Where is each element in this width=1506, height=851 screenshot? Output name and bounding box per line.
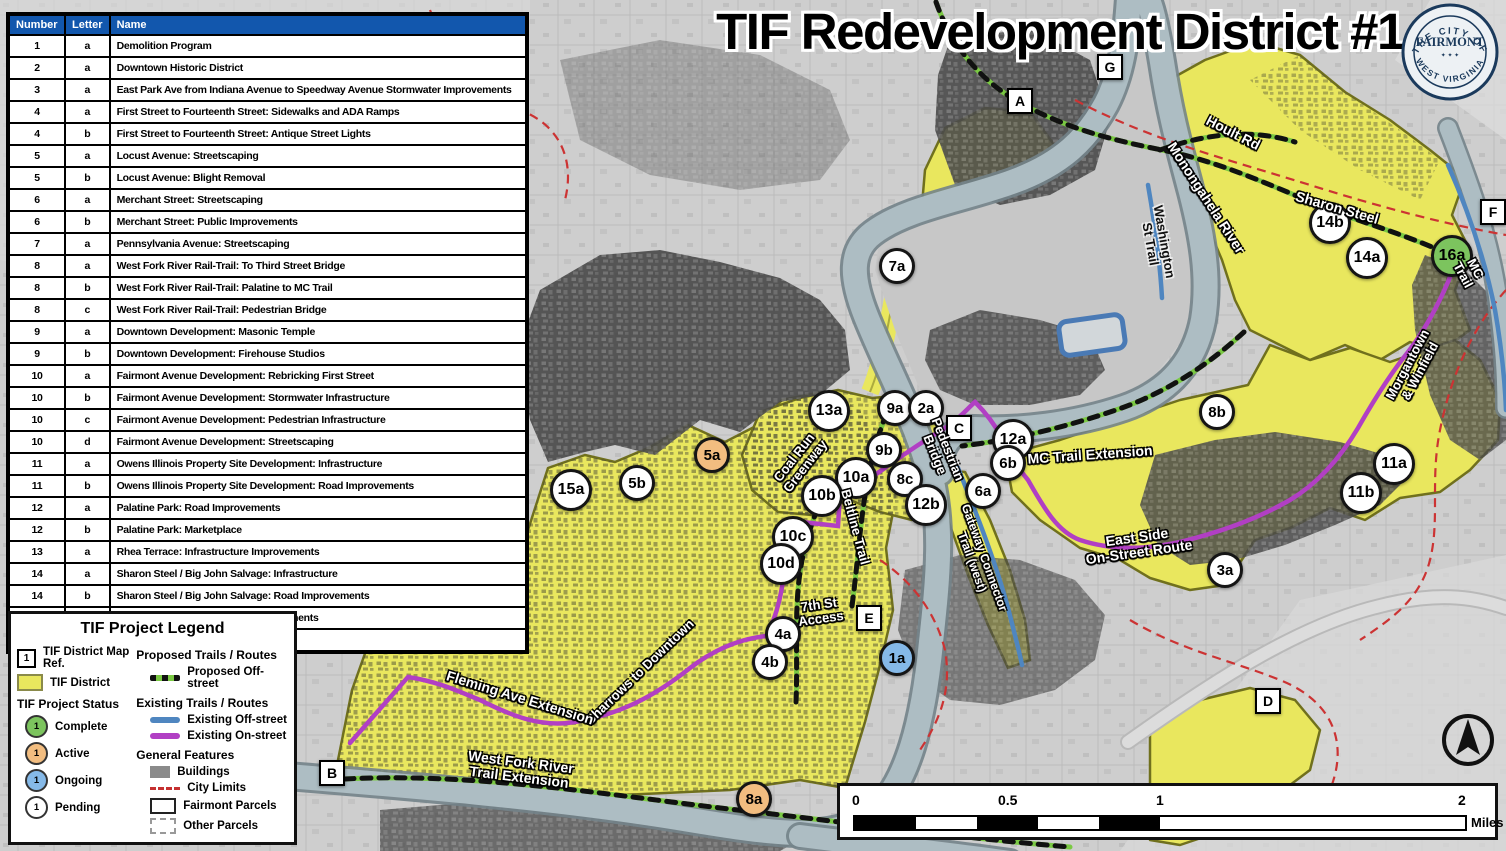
col-header-name: Name xyxy=(110,15,526,35)
project-marker-14a: 14a xyxy=(1346,237,1388,279)
cell-number: 9 xyxy=(9,343,65,365)
cell-letter: b xyxy=(65,475,110,497)
cell-number: 6 xyxy=(9,189,65,211)
project-marker-12b: 12b xyxy=(905,484,947,526)
cell-letter: a xyxy=(65,79,110,101)
cell-name: Demolition Program xyxy=(110,35,526,57)
cell-letter: b xyxy=(65,167,110,189)
cell-letter: a xyxy=(65,57,110,79)
cell-letter: b xyxy=(65,519,110,541)
cell-number: 5 xyxy=(9,167,65,189)
cell-number: 11 xyxy=(9,475,65,497)
cell-name: First Street to Fourteenth Street: Sidew… xyxy=(110,101,526,123)
page-title: TIF Redevelopment District #1 xyxy=(620,6,1500,57)
table-row: 8aWest Fork River Rail-Trail: To Third S… xyxy=(9,255,526,277)
other-parcels-swatch xyxy=(150,818,176,834)
project-marker-8a: 8a xyxy=(736,781,772,817)
legend-fairmont-parcels: Fairmont Parcels xyxy=(150,798,288,814)
table-row: 8bWest Fork River Rail-Trail: Palatine t… xyxy=(9,277,526,299)
scale-tick-2: 2 xyxy=(1458,792,1466,808)
table-row: 14aSharon Steel / Big John Salvage: Infr… xyxy=(9,563,526,585)
map-ref-label-G: G xyxy=(1097,54,1123,80)
city-limits-swatch xyxy=(150,787,180,790)
cell-name: East Park Ave from Indiana Avenue to Spe… xyxy=(110,79,526,101)
cell-number: 6 xyxy=(9,211,65,233)
cell-number: 1 xyxy=(9,35,65,57)
project-marker-15a: 15a xyxy=(550,469,592,511)
map-ref-label-F: F xyxy=(1480,199,1506,225)
cell-number: 7 xyxy=(9,233,65,255)
table-row: 4aFirst Street to Fourteenth Street: Sid… xyxy=(9,101,526,123)
legend-status-ongoing: 1Ongoing xyxy=(17,769,136,792)
scale-tick-0: 0 xyxy=(852,792,860,808)
scale-tick-05: 0.5 xyxy=(998,792,1017,808)
cell-name: Sharon Steel / Big John Salvage: Road Im… xyxy=(110,585,526,607)
existing-onstreet-swatch xyxy=(150,733,180,739)
cell-name: Merchant Street: Streetscaping xyxy=(110,189,526,211)
cell-name: Fairmont Avenue Development: Stormwater … xyxy=(110,387,526,409)
cell-letter: a xyxy=(65,233,110,255)
project-marker-1a: 1a xyxy=(879,640,915,676)
cell-name: Fairmont Avenue Development: Streetscapi… xyxy=(110,431,526,453)
cell-letter: b xyxy=(65,123,110,145)
cell-name: West Fork River Rail-Trail: Palatine to … xyxy=(110,277,526,299)
project-marker-7a: 7a xyxy=(879,248,915,284)
cell-letter: a xyxy=(65,321,110,343)
cell-number: 12 xyxy=(9,519,65,541)
cell-letter: c xyxy=(65,409,110,431)
status-label: Complete xyxy=(55,721,107,733)
table-row: 9bDowntown Development: Firehouse Studio… xyxy=(9,343,526,365)
cell-number: 10 xyxy=(9,409,65,431)
cell-number: 10 xyxy=(9,365,65,387)
cell-number: 2 xyxy=(9,57,65,79)
existing-offstreet-swatch xyxy=(150,717,180,723)
proposed-offstreet-swatch xyxy=(150,675,180,681)
project-marker-10b: 10b xyxy=(801,475,843,517)
cell-letter: a xyxy=(65,189,110,211)
table-row: 1aDemolition Program xyxy=(9,35,526,57)
complete-status-swatch: 1 xyxy=(25,715,48,738)
cell-number: 9 xyxy=(9,321,65,343)
legend-status-pending: 1Pending xyxy=(17,796,136,819)
district-swatch xyxy=(17,674,43,691)
cell-name: Merchant Street: Public Improvements xyxy=(110,211,526,233)
table-row: 10cFairmont Avenue Development: Pedestri… xyxy=(9,409,526,431)
table-row: 14bSharon Steel / Big John Salvage: Road… xyxy=(9,585,526,607)
north-arrow xyxy=(1440,711,1496,769)
legend-proposed-title: Proposed Trails / Routes xyxy=(136,648,288,662)
table-row: 4bFirst Street to Fourteenth Street: Ant… xyxy=(9,123,526,145)
cell-name: Rhea Terrace: Infrastructure Improvement… xyxy=(110,541,526,563)
map-ref-label-D: D xyxy=(1255,688,1281,714)
table-row: 8cWest Fork River Rail-Trail: Pedestrian… xyxy=(9,299,526,321)
cell-number: 14 xyxy=(9,563,65,585)
col-header-letter: Letter xyxy=(65,15,110,35)
legend-existing-offstreet: Existing Off-street xyxy=(150,714,288,726)
legend-buildings: Buildings xyxy=(150,766,288,778)
table-row: 5bLocust Avenue: Blight Removal xyxy=(9,167,526,189)
cell-number: 8 xyxy=(9,299,65,321)
cell-name: West Fork River Rail-Trail: To Third Str… xyxy=(110,255,526,277)
cell-name: First Street to Fourteenth Street: Antiq… xyxy=(110,123,526,145)
table-row: 6bMerchant Street: Public Improvements xyxy=(9,211,526,233)
legend-proposed-offstreet: Proposed Off-street xyxy=(150,666,288,690)
legend-existing-onstreet: Existing On-street xyxy=(150,730,288,742)
table-row: 3aEast Park Ave from Indiana Avenue to S… xyxy=(9,79,526,101)
map-ref-label-B: B xyxy=(319,760,345,786)
legend-title: TIF Project Legend xyxy=(17,620,288,638)
cell-letter: b xyxy=(65,343,110,365)
cell-letter: a xyxy=(65,101,110,123)
cell-letter: a xyxy=(65,453,110,475)
project-marker-11b: 11b xyxy=(1340,472,1382,514)
table-row: 5aLocust Avenue: Streetscaping xyxy=(9,145,526,167)
scale-tick-1: 1 xyxy=(1156,792,1164,808)
cell-letter: a xyxy=(65,563,110,585)
cell-name: Fairmont Avenue Development: Pedestrian … xyxy=(110,409,526,431)
cell-letter: a xyxy=(65,145,110,167)
legend-status-complete: 1Complete xyxy=(17,715,136,738)
ongoing-status-swatch: 1 xyxy=(25,769,48,792)
project-marker-11a: 11a xyxy=(1373,443,1415,485)
cell-number: 8 xyxy=(9,277,65,299)
project-marker-6a: 6a xyxy=(965,473,1001,509)
svg-text:✦ ✦ ✦: ✦ ✦ ✦ xyxy=(1441,52,1459,59)
cell-name: Downtown Historic District xyxy=(110,57,526,79)
cell-letter: a xyxy=(65,497,110,519)
legend-map-ref: 1 TIF District Map Ref. xyxy=(17,646,136,670)
table-row: 10bFairmont Avenue Development: Stormwat… xyxy=(9,387,526,409)
project-marker-6b: 6b xyxy=(990,445,1026,481)
table-row: 13aRhea Terrace: Infrastructure Improvem… xyxy=(9,541,526,563)
cell-name: Locust Avenue: Blight Removal xyxy=(110,167,526,189)
table-row: 10dFairmont Avenue Development: Streetsc… xyxy=(9,431,526,453)
cell-name: Downtown Development: Firehouse Studios xyxy=(110,343,526,365)
cell-name: Owens Illinois Property Site Development… xyxy=(110,453,526,475)
table-row: 11bOwens Illinois Property Site Developm… xyxy=(9,475,526,497)
cell-letter: b xyxy=(65,585,110,607)
project-marker-4b: 4b xyxy=(752,644,788,680)
legend-status-title: TIF Project Status xyxy=(17,697,136,711)
project-marker-2a: 2a xyxy=(908,390,944,426)
legend-general-title: General Features xyxy=(136,748,288,762)
col-header-number: Number xyxy=(9,15,65,35)
project-marker-5a: 5a xyxy=(694,437,730,473)
cell-number: 4 xyxy=(9,123,65,145)
legend-existing-title: Existing Trails / Routes xyxy=(136,696,288,710)
project-marker-8b: 8b xyxy=(1199,394,1235,430)
active-status-swatch: 1 xyxy=(25,742,48,765)
table-row: 6aMerchant Street: Streetscaping xyxy=(9,189,526,211)
status-label: Pending xyxy=(55,802,100,814)
cell-number: 11 xyxy=(9,453,65,475)
cell-number: 5 xyxy=(9,145,65,167)
status-label: Active xyxy=(55,748,90,760)
cell-letter: a xyxy=(65,541,110,563)
cell-letter: a xyxy=(65,365,110,387)
project-marker-3a: 3a xyxy=(1207,552,1243,588)
cell-letter: c xyxy=(65,299,110,321)
cell-number: 4 xyxy=(9,101,65,123)
fairmont-parcels-swatch xyxy=(150,798,176,814)
status-label: Ongoing xyxy=(55,775,102,787)
cell-name: Palatine Park: Marketplace xyxy=(110,519,526,541)
project-table: Number Letter Name 1aDemolition Program2… xyxy=(8,14,527,652)
cell-name: Sharon Steel / Big John Salvage: Infrast… xyxy=(110,563,526,585)
table-header-row: Number Letter Name xyxy=(9,15,526,35)
cell-number: 13 xyxy=(9,541,65,563)
legend-city-limits: City Limits xyxy=(150,782,288,794)
scale-bar-segments xyxy=(853,815,1467,831)
cell-letter: a xyxy=(65,35,110,57)
map-ref-label-C: C xyxy=(946,415,972,441)
cell-number: 10 xyxy=(9,431,65,453)
cell-letter: a xyxy=(65,255,110,277)
city-seal-logo: THE CITY OF FAIRMONT ✦ ✦ ✦ WEST VIRGINIA xyxy=(1400,2,1500,102)
cell-name: Fairmont Avenue Development: Rebricking … xyxy=(110,365,526,387)
table-row: 2aDowntown Historic District xyxy=(9,57,526,79)
scale-unit-label: Miles xyxy=(1471,815,1504,830)
project-marker-16a: 16a xyxy=(1431,235,1473,277)
map-ref-label-E: E xyxy=(856,605,882,631)
cell-letter: d xyxy=(65,431,110,453)
cell-name: Pennsylvania Avenue: Streetscaping xyxy=(110,233,526,255)
pending-status-swatch: 1 xyxy=(25,796,48,819)
project-marker-14b: 14b xyxy=(1309,202,1351,244)
cell-number: 8 xyxy=(9,255,65,277)
map-canvas: TIF Redevelopment District #1 THE CITY O… xyxy=(0,0,1506,851)
project-marker-13a: 13a xyxy=(808,390,850,432)
table-row: 11aOwens Illinois Property Site Developm… xyxy=(9,453,526,475)
map-ref-swatch: 1 xyxy=(17,649,36,668)
cell-letter: b xyxy=(65,277,110,299)
table-row: 10aFairmont Avenue Development: Rebricki… xyxy=(9,365,526,387)
map-ref-label-A: A xyxy=(1007,88,1033,114)
cell-number: 3 xyxy=(9,79,65,101)
cell-name: Palatine Park: Road Improvements xyxy=(110,497,526,519)
legend-other-parcels: Other Parcels xyxy=(150,818,288,834)
cell-number: 10 xyxy=(9,387,65,409)
seal-name: FAIRMONT xyxy=(1416,35,1485,49)
table-row: 7aPennsylvania Avenue: Streetscaping xyxy=(9,233,526,255)
cell-name: West Fork River Rail-Trail: Pedestrian B… xyxy=(110,299,526,321)
legend-status-active: 1Active xyxy=(17,742,136,765)
project-marker-5b: 5b xyxy=(619,465,655,501)
cell-name: Owens Illinois Property Site Development… xyxy=(110,475,526,497)
cell-number: 14 xyxy=(9,585,65,607)
buildings-swatch xyxy=(150,766,170,778)
cell-name: Downtown Development: Masonic Temple xyxy=(110,321,526,343)
legend-district: TIF District xyxy=(17,674,136,691)
cell-letter: b xyxy=(65,211,110,233)
table-row: 12bPalatine Park: Marketplace xyxy=(9,519,526,541)
project-marker-10d: 10d xyxy=(760,543,802,585)
cell-number: 12 xyxy=(9,497,65,519)
table-row: 9aDowntown Development: Masonic Temple xyxy=(9,321,526,343)
legend-panel: TIF Project Legend 1 TIF District Map Re… xyxy=(8,611,297,845)
table-row: 12aPalatine Park: Road Improvements xyxy=(9,497,526,519)
cell-letter: b xyxy=(65,387,110,409)
cell-name: Locust Avenue: Streetscaping xyxy=(110,145,526,167)
scale-bar: 0 0.5 1 2 Miles xyxy=(837,783,1498,840)
